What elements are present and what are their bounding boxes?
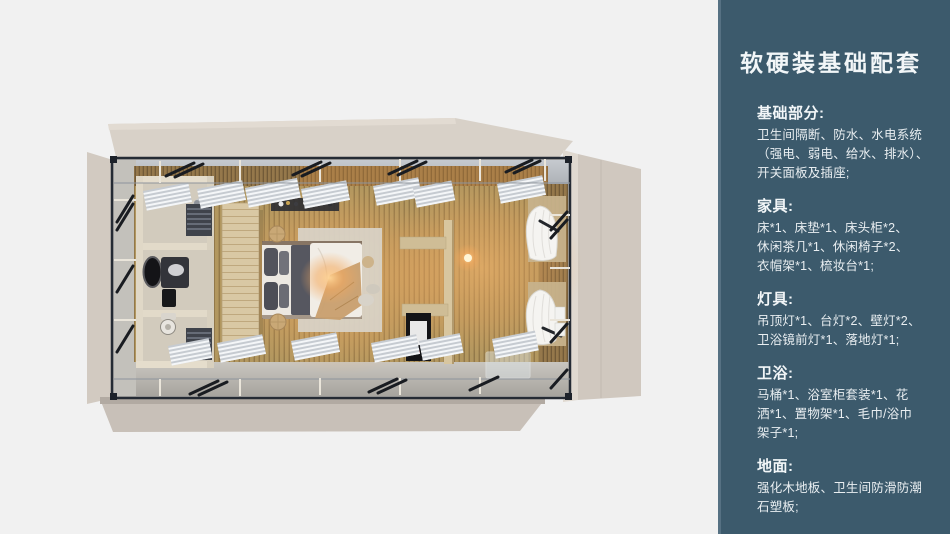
table-lamp-glow <box>300 252 360 304</box>
wall-shelf-1 <box>400 237 446 249</box>
vanity-sink <box>168 264 184 276</box>
section-basics: 基础部分: 卫生间隔断、防水、水电系统 （强电、弱电、给水、排水）、 开关面板及… <box>757 102 938 183</box>
toilet-bowl <box>165 324 171 330</box>
section-basics-line-1: 卫生间隔断、防水、水电系统 <box>757 126 938 145</box>
dried-plant <box>362 256 374 268</box>
section-lighting-line-2: 卫浴镜前灯*1、落地灯*1; <box>757 331 938 350</box>
pouf-top <box>269 226 285 242</box>
section-flooring-line-1: 强化木地板、卫生间防滑防潮 <box>757 479 938 498</box>
floor-lamp <box>454 244 482 272</box>
toilet-tank <box>161 313 176 320</box>
section-furniture-heading: 家具: <box>757 195 938 216</box>
wall-panel-right <box>578 154 641 400</box>
section-flooring-heading: 地面: <box>757 455 938 476</box>
headboard-partition <box>222 203 259 353</box>
section-basics-heading: 基础部分: <box>757 102 938 123</box>
slide-page: 软硬装基础配套 基础部分: 卫生间隔断、防水、水电系统 （强电、弱电、给水、排水… <box>0 0 950 534</box>
bathroom-divider-1 <box>143 243 214 250</box>
pillow-inner-1 <box>279 251 289 275</box>
sidebar-title: 软硬装基础配套 <box>740 44 938 78</box>
cushion-1 <box>358 294 374 306</box>
section-lighting-heading: 灯具: <box>757 288 938 309</box>
section-furniture-line-1: 床*1、床垫*1、床头柜*2、 <box>757 219 938 238</box>
floorplan-render <box>0 0 718 534</box>
towel-rack-top <box>186 204 212 236</box>
section-bathroom-line-3: 架子*1; <box>757 424 938 443</box>
switch-panel-1 <box>555 307 565 320</box>
cushion-2 <box>366 284 380 294</box>
section-bathroom: 卫浴: 马桶*1、浴室柜套装*1、花 洒*1、置物架*1、毛巾/浴巾 架子*1; <box>757 362 938 443</box>
section-furniture-line-2: 休闲茶几*1、休闲椅子*2、 <box>757 238 938 257</box>
info-sidebar: 软硬装基础配套 基础部分: 卫生间隔断、防水、水电系统 （强电、弱电、给水、排水… <box>718 0 950 534</box>
section-furniture-line-3: 衣帽架*1、梳妆台*1; <box>757 257 938 276</box>
section-bathroom-line-1: 马桶*1、浴室柜套装*1、花 <box>757 386 938 405</box>
section-basics-line-3: 开关面板及插座; <box>757 164 938 183</box>
section-furniture: 家具: 床*1、床垫*1、床头柜*2、 休闲茶几*1、休闲椅子*2、 衣帽架*1… <box>757 195 938 276</box>
section-bathroom-line-2: 洒*1、置物架*1、毛巾/浴巾 <box>757 405 938 424</box>
floorplan-svg <box>0 0 718 534</box>
pillow-dark-1 <box>264 248 278 276</box>
pillow-dark-2 <box>264 282 278 310</box>
section-flooring: 地面: 强化木地板、卫生间防滑防潮 石塑板; <box>757 455 938 517</box>
section-lighting-line-1: 吊顶灯*1、台灯*2、壁灯*2、 <box>757 312 938 331</box>
section-lighting: 灯具: 吊顶灯*1、台灯*2、壁灯*2、 卫浴镜前灯*1、落地灯*1; <box>757 288 938 350</box>
bathroom-divider-2 <box>143 310 214 317</box>
section-flooring-line-2: 石塑板; <box>757 498 938 517</box>
pouf-bottom <box>270 314 286 330</box>
section-basics-line-2: （强电、弱电、给水、排水）、 <box>757 145 938 164</box>
section-bathroom-heading: 卫浴: <box>757 362 938 383</box>
wall-panel-left <box>87 152 113 404</box>
bathroom-wall-left <box>136 176 143 368</box>
pillow-inner-2 <box>279 284 289 308</box>
round-mirror <box>144 257 162 287</box>
vanity-stool <box>162 289 176 307</box>
